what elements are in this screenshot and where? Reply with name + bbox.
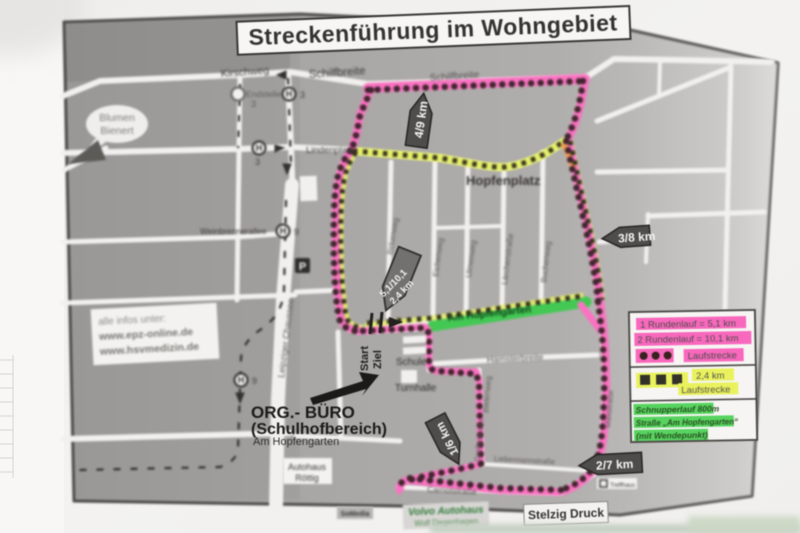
svg-text:H: H bbox=[280, 226, 287, 236]
svg-text:Am Hopfengarten: Am Hopfengarten bbox=[253, 436, 339, 448]
svg-text:P: P bbox=[299, 261, 306, 273]
svg-text:Laufstrecke: Laufstrecke bbox=[681, 384, 730, 396]
svg-text:2,4 km: 2,4 km bbox=[696, 370, 725, 381]
svg-text:Röttig: Röttig bbox=[295, 473, 319, 483]
svg-text:Hopfenplatz: Hopfenplatz bbox=[466, 173, 541, 188]
svg-text:Treffhaus: Treffhaus bbox=[610, 483, 635, 489]
svg-text:ORG.- BÜRO: ORG.- BÜRO bbox=[251, 403, 355, 422]
svg-text:2/7 km: 2/7 km bbox=[596, 457, 634, 473]
svg-text:3: 3 bbox=[251, 99, 256, 109]
svg-text:(mit Wendepunkt): (mit Wendepunkt) bbox=[636, 430, 708, 441]
svg-text:Endstelle: Endstelle bbox=[246, 89, 281, 99]
svg-text:Start: Start bbox=[359, 346, 371, 371]
svg-text:Blumen: Blumen bbox=[99, 112, 135, 124]
svg-text:Turnhalle: Turnhalle bbox=[395, 383, 437, 394]
svg-text:3: 3 bbox=[300, 90, 305, 100]
svg-text:9: 9 bbox=[252, 376, 257, 386]
svg-text:H: H bbox=[286, 89, 293, 99]
svg-text:2 Rundenlauf = 10,1 km: 2 Rundenlauf = 10,1 km bbox=[637, 333, 738, 346]
svg-text:3: 3 bbox=[255, 157, 260, 167]
svg-text:Bienert: Bienert bbox=[100, 125, 133, 137]
svg-text:H: H bbox=[238, 375, 245, 385]
svg-text:Autohaus: Autohaus bbox=[288, 462, 327, 472]
svg-text:3/8 km: 3/8 km bbox=[618, 229, 656, 246]
svg-text:Ziel: Ziel bbox=[372, 350, 384, 369]
svg-text:Schule: Schule bbox=[396, 357, 427, 368]
svg-text:Schnupperlauf 800m: Schnupperlauf 800m bbox=[636, 404, 720, 415]
svg-text:9: 9 bbox=[294, 227, 299, 237]
svg-text:H: H bbox=[256, 143, 263, 153]
svg-text:Weinbrennerallee: Weinbrennerallee bbox=[200, 226, 267, 236]
svg-text:Straße „Am Hopfengarten“: Straße „Am Hopfengarten“ bbox=[636, 417, 738, 428]
svg-text:Laufstrecke: Laufstrecke bbox=[688, 350, 737, 362]
svg-text:1 Rundenlauf = 5,1 km: 1 Rundenlauf = 5,1 km bbox=[640, 318, 736, 331]
svg-text:Lindenplan: Lindenplan bbox=[306, 145, 353, 156]
